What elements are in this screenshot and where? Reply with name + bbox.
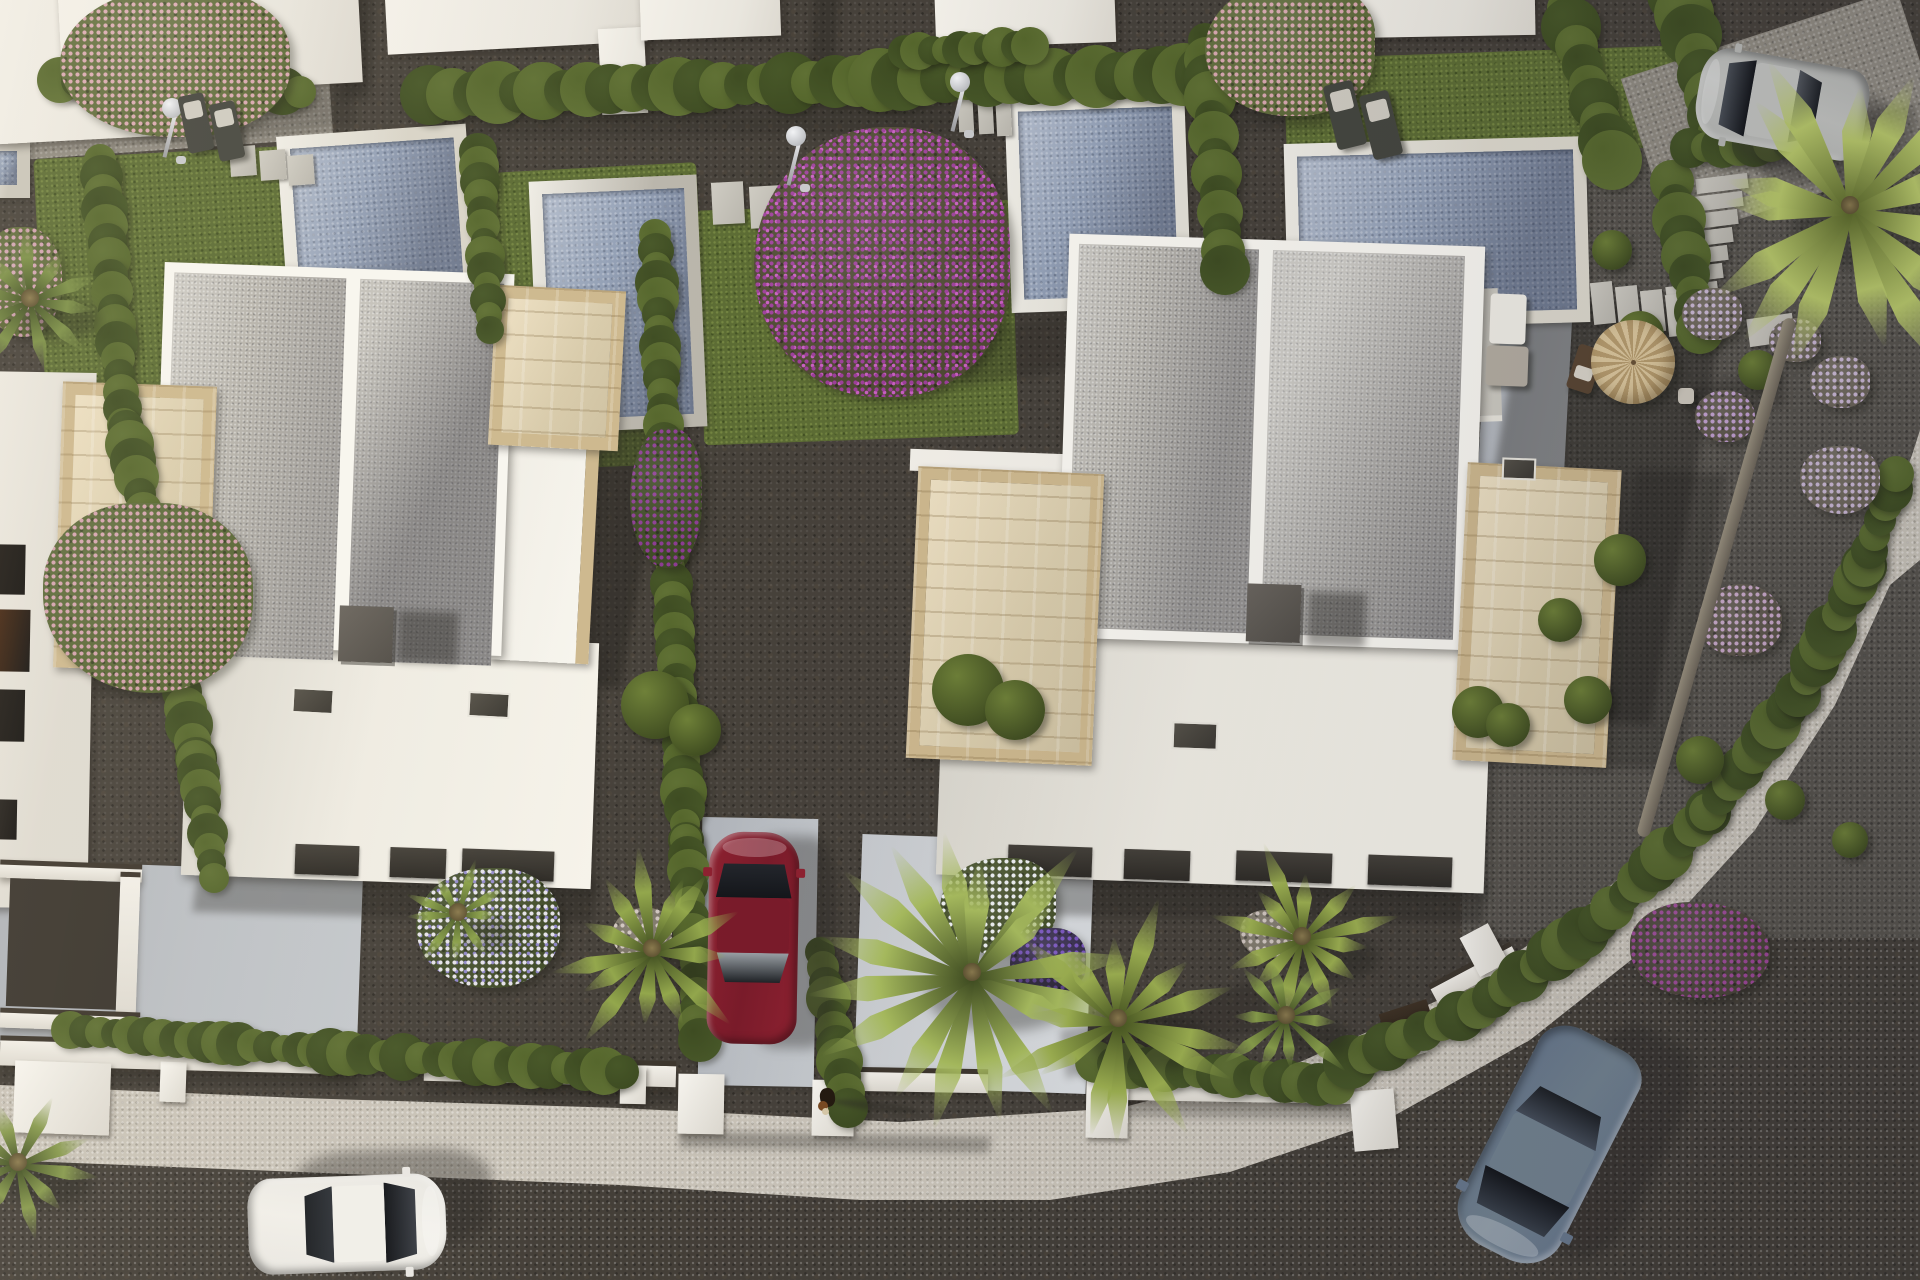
window-slot [0, 609, 31, 672]
wall-pier [677, 1074, 724, 1135]
bush [1594, 534, 1646, 586]
porch-window [1123, 849, 1190, 881]
car-white [246, 1173, 447, 1276]
building-block [639, 0, 781, 40]
car-mirror [402, 1167, 410, 1177]
porch-window [389, 847, 446, 879]
stepping-stone [1590, 281, 1616, 325]
chimney [1246, 583, 1302, 643]
pool [0, 138, 30, 198]
bush [1486, 703, 1530, 747]
skylight [1172, 721, 1219, 751]
shower-base [800, 184, 810, 192]
skylight [1502, 457, 1537, 480]
hedge-shrub [1011, 27, 1049, 65]
car-roof [332, 1184, 386, 1263]
aerial-render-scene [0, 0, 1920, 1280]
bush [985, 680, 1045, 740]
lounger-cushion [1329, 88, 1354, 112]
lounger-cushion [1365, 98, 1390, 122]
bush [1592, 230, 1632, 270]
wall-pier [159, 1062, 186, 1103]
pool-water [0, 151, 17, 185]
skylight [291, 687, 334, 715]
stone-terrace [488, 285, 626, 452]
outdoor-sofa [1489, 293, 1527, 344]
hedge-shrub [476, 316, 504, 344]
car-rear-window [304, 1186, 334, 1264]
window-slot [0, 689, 25, 742]
palm-crown [1293, 927, 1311, 945]
bush [1676, 736, 1724, 784]
parasol [1591, 320, 1675, 404]
courtyard-gravel [6, 878, 120, 1010]
flower-bed [630, 428, 702, 568]
shower-base [964, 130, 974, 138]
window-slot [0, 799, 17, 840]
stepping-stone [711, 181, 745, 225]
car-windshield [716, 863, 792, 898]
lounger-cushion [183, 100, 204, 121]
skylight [467, 691, 510, 719]
flower-bed [1800, 446, 1880, 514]
porch-window [1368, 855, 1453, 888]
car-mirror [406, 1267, 414, 1277]
flower-bed [1695, 390, 1755, 442]
stepping-stone [259, 149, 287, 181]
palm-crown [643, 939, 661, 957]
chimney [338, 605, 394, 663]
bush [1765, 780, 1805, 820]
bush [1564, 676, 1612, 724]
roof-cell [1261, 250, 1465, 640]
wall-pier [1349, 1088, 1398, 1152]
hedge-shrub [1582, 130, 1642, 190]
bush [669, 704, 721, 756]
window-slot [0, 544, 26, 595]
flower-bed [1682, 288, 1742, 340]
hedge-shrub [1878, 456, 1914, 492]
car-mirror [796, 869, 805, 878]
car-roof [717, 897, 790, 953]
villa-right-main-roof [1057, 234, 1485, 651]
flower-bed [1810, 356, 1870, 408]
palm-crown [1277, 1006, 1295, 1024]
car-mirror [703, 867, 712, 876]
bush [1832, 822, 1868, 858]
palm-crown [449, 903, 467, 921]
palm-crown [21, 289, 39, 307]
shower-base [176, 156, 186, 164]
shower-head [786, 126, 806, 146]
bush [1538, 598, 1582, 642]
palm-crown [1109, 1009, 1127, 1027]
flower-bed [43, 503, 253, 693]
wall-pier [13, 1060, 111, 1135]
stepping-stone [287, 154, 315, 186]
lounger-cushion [214, 108, 235, 129]
palm-crown [963, 963, 981, 981]
porch-window [294, 844, 359, 876]
palm-crown [1841, 196, 1859, 214]
outdoor-seat [1485, 345, 1528, 386]
shower-head [950, 72, 970, 92]
palm-crown [9, 1153, 27, 1171]
dog-chest [822, 1108, 829, 1115]
side-table [1678, 388, 1694, 404]
car-windshield [383, 1181, 417, 1263]
